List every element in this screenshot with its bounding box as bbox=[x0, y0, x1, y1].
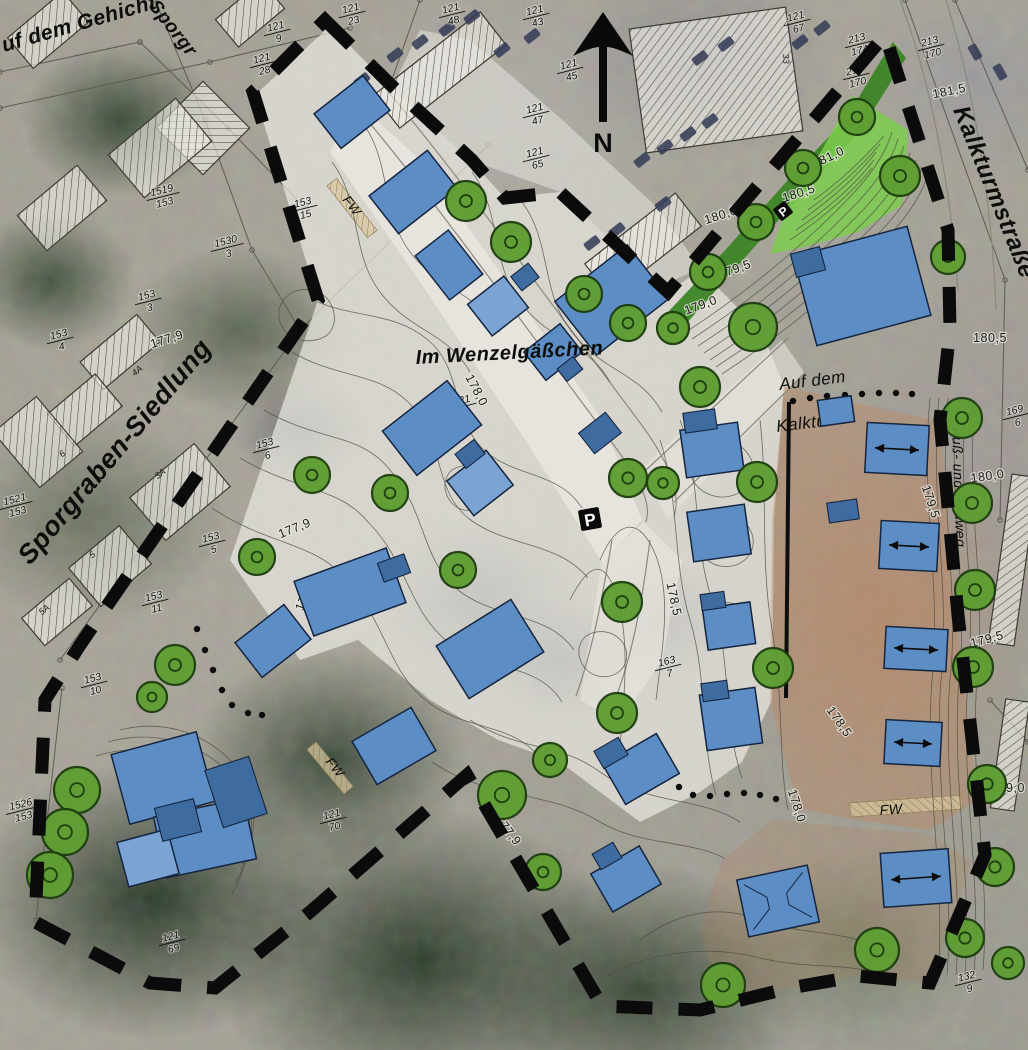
tree-symbol bbox=[602, 582, 642, 622]
tree-symbol bbox=[942, 398, 982, 438]
tree-symbol bbox=[701, 963, 745, 1007]
house-number: 33 bbox=[781, 53, 792, 64]
proposed-building bbox=[880, 849, 952, 908]
tree-symbol bbox=[566, 276, 602, 312]
proposed-building bbox=[817, 396, 854, 426]
tree-symbol bbox=[491, 222, 531, 262]
building-annex bbox=[701, 680, 729, 701]
tree-symbol bbox=[440, 552, 476, 588]
proposed-building bbox=[884, 626, 948, 671]
path-dot bbox=[773, 796, 779, 802]
path-dot bbox=[219, 687, 225, 693]
tree-symbol bbox=[155, 645, 195, 685]
building-annex bbox=[700, 591, 726, 610]
tree-symbol bbox=[533, 743, 567, 777]
tree-symbol bbox=[839, 99, 875, 135]
tree-symbol bbox=[729, 303, 777, 351]
path-dot bbox=[876, 390, 882, 396]
proposed-building bbox=[865, 422, 930, 475]
tree-symbol bbox=[880, 156, 920, 196]
path-dot bbox=[807, 395, 813, 401]
path-dot bbox=[229, 702, 235, 708]
tree-symbol bbox=[753, 648, 793, 688]
tree-symbol bbox=[992, 947, 1024, 979]
building-annex bbox=[827, 499, 859, 523]
tree-symbol bbox=[657, 312, 689, 344]
tree-symbol bbox=[609, 459, 647, 497]
tree-symbol bbox=[737, 462, 777, 502]
tree-symbol bbox=[372, 475, 408, 511]
tree-symbol bbox=[294, 457, 330, 493]
path-dot bbox=[259, 712, 265, 718]
path-dot bbox=[707, 793, 713, 799]
path-dot bbox=[202, 647, 208, 653]
tree-symbol bbox=[239, 539, 275, 575]
plan-overlay-svg: 177,9177,9177,9177,9178,0178,5178,5178,5… bbox=[0, 0, 1028, 1050]
path-dot bbox=[790, 398, 796, 404]
tree-symbol bbox=[446, 181, 486, 221]
tree-symbol bbox=[855, 928, 899, 972]
tree-symbol bbox=[680, 367, 720, 407]
street-label-fw-3: FW bbox=[879, 800, 904, 818]
path-dot bbox=[909, 391, 915, 397]
path-dot bbox=[690, 792, 696, 798]
path-dot bbox=[194, 626, 200, 632]
building-annex bbox=[683, 409, 717, 433]
tree-symbol bbox=[137, 682, 167, 712]
tree-symbol bbox=[597, 693, 637, 733]
north-label: N bbox=[593, 128, 613, 158]
parking-symbol: P bbox=[578, 507, 602, 532]
tree-symbol bbox=[54, 767, 100, 813]
tree-symbol bbox=[952, 483, 992, 523]
existing-building bbox=[629, 7, 803, 153]
path-dot bbox=[724, 791, 730, 797]
path-dot bbox=[893, 390, 899, 396]
tree-symbol bbox=[42, 809, 88, 855]
path-dot bbox=[757, 792, 763, 798]
site-plan-map: 177,9177,9177,9177,9178,0178,5178,5178,5… bbox=[0, 0, 1028, 1050]
path-dot bbox=[676, 784, 682, 790]
path-dot bbox=[741, 790, 747, 796]
tree-symbol bbox=[610, 305, 646, 341]
path-dot bbox=[245, 710, 251, 716]
proposed-building bbox=[687, 504, 751, 562]
proposed-building bbox=[884, 720, 942, 767]
path-dot bbox=[859, 391, 865, 397]
tree-symbol bbox=[647, 467, 679, 499]
proposed-building bbox=[879, 521, 939, 572]
path-dot bbox=[210, 667, 216, 673]
elevation-label: 180,5 bbox=[973, 331, 1007, 345]
